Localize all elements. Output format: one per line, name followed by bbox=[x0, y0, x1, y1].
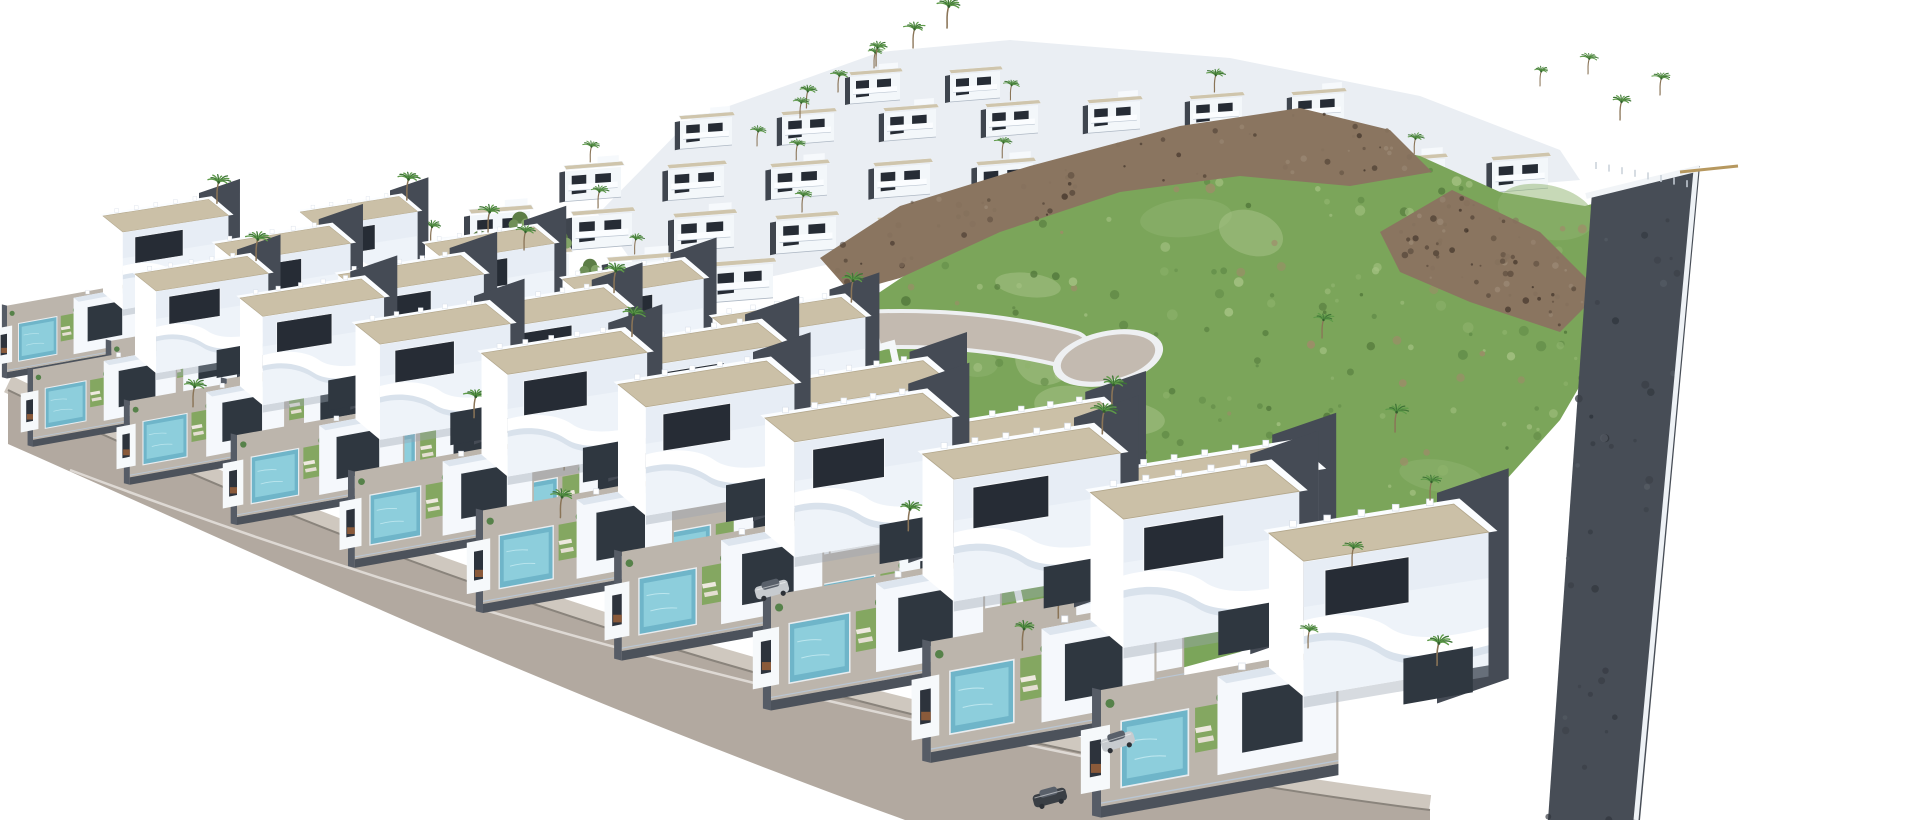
planter bbox=[921, 712, 931, 721]
terraced-house bbox=[566, 207, 636, 251]
shrub bbox=[775, 603, 783, 611]
shrub bbox=[626, 559, 634, 567]
shrub bbox=[487, 518, 494, 525]
aerial-render bbox=[0, 0, 1920, 820]
terraced-house bbox=[945, 66, 1003, 103]
terraced-house bbox=[981, 100, 1041, 138]
terraced-house bbox=[675, 106, 735, 150]
shrub bbox=[240, 441, 246, 447]
palm-tree bbox=[1652, 73, 1670, 95]
shrub bbox=[133, 407, 139, 413]
shrub bbox=[114, 346, 120, 352]
planter bbox=[613, 615, 622, 623]
palm-tree bbox=[1613, 95, 1631, 120]
villa-development-render bbox=[0, 0, 1920, 820]
shrub bbox=[1105, 699, 1114, 708]
glass-door bbox=[88, 300, 123, 341]
palm-tree bbox=[937, 0, 960, 28]
palm-tree bbox=[583, 141, 600, 162]
planter bbox=[230, 487, 237, 493]
planter bbox=[475, 570, 483, 577]
terraced-house bbox=[777, 108, 837, 146]
shrub bbox=[36, 375, 41, 380]
terraced-house bbox=[868, 158, 933, 199]
planter bbox=[1, 348, 7, 353]
shrub bbox=[10, 311, 15, 316]
palm-tree bbox=[904, 22, 925, 48]
palm-tree bbox=[1535, 66, 1548, 86]
glass-door bbox=[1242, 681, 1302, 753]
planter bbox=[27, 414, 33, 419]
terraced-house bbox=[559, 155, 624, 203]
planter bbox=[762, 662, 771, 670]
planter bbox=[1091, 764, 1101, 773]
shrub bbox=[935, 650, 944, 659]
planter bbox=[123, 449, 130, 455]
palm-tree bbox=[1580, 53, 1598, 74]
planter bbox=[347, 527, 355, 534]
terraced-house bbox=[662, 160, 727, 201]
terraced-house bbox=[770, 211, 840, 255]
shrub bbox=[358, 478, 365, 485]
